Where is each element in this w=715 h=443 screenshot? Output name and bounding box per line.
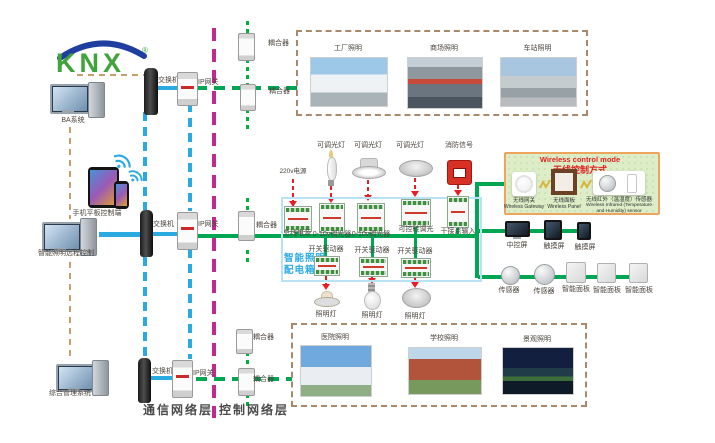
ethernet-line [155, 86, 179, 90]
coupler-line [246, 109, 249, 133]
module-label: 开关驱动器 [304, 246, 348, 254]
line-coupler [238, 33, 255, 61]
switch-actuator-module [401, 258, 431, 278]
smart-panel [597, 263, 616, 283]
comm-layer-label: 通信网络层 [143, 401, 213, 418]
panel-label: 智能面板 [561, 286, 591, 294]
load-label: 照明灯 [358, 312, 386, 320]
load-arrow [322, 284, 330, 290]
load-label: 照明灯 [401, 313, 429, 321]
ceiling-lamp [314, 291, 338, 306]
bulb-lamp [364, 283, 380, 309]
coupler-label: 耦合器 [256, 222, 280, 230]
sensor-dome [599, 175, 616, 192]
cabinet-title-line2: 配电箱 [284, 262, 316, 276]
ethernet-line [188, 103, 192, 211]
screen-label: 中控屏 [502, 242, 532, 250]
load-label: 消防信号 [442, 142, 476, 150]
coupler-line [246, 250, 249, 265]
dry-contact-module [447, 196, 469, 228]
module-label: 开关驱动器 [393, 248, 437, 256]
panel-label: 智能面板 [624, 287, 654, 295]
wireless-sensor-device [593, 171, 645, 195]
ethernet-line [143, 257, 147, 357]
touch-screen [577, 222, 591, 240]
ip-gateway [172, 360, 193, 398]
smart-panel [566, 262, 586, 283]
pc1-label: BA系统 [44, 117, 102, 125]
pc3-label: 综合管理系统 [38, 390, 102, 398]
load-label: 可调光灯 [394, 142, 426, 150]
ethernet-switch [140, 210, 153, 257]
switch-label: 交换机 [153, 221, 177, 229]
dimmer-module [357, 203, 385, 233]
wireless-sensor-label-en: Wireless Infrared (Temperature and Humid… [582, 203, 656, 215]
downlight-lamp [352, 158, 384, 178]
gateway-label: IP网关 [198, 221, 226, 229]
coupler-label: 耦合器 [253, 334, 277, 342]
screen-stand [513, 237, 521, 239]
line-coupler [236, 329, 253, 354]
pc-stand [62, 110, 74, 114]
module-label: 干接点输入 [432, 228, 484, 236]
bus-power-module [284, 206, 312, 232]
sensor-body [627, 174, 637, 193]
fire-alarm [447, 160, 472, 185]
load-label: 可调光灯 [352, 142, 384, 150]
knx-logo-text: KNX [56, 48, 125, 79]
presence-sensor [534, 264, 555, 285]
module-label: 开关驱动器 [350, 247, 394, 255]
school-photo [408, 347, 482, 395]
coupler-label: 耦合器 [253, 376, 277, 384]
candle-lamp [325, 150, 337, 186]
mall-photo [407, 57, 483, 109]
ethernet-line [152, 232, 179, 236]
landscape-photo [502, 347, 574, 395]
sensor-label: 传感器 [531, 288, 557, 296]
zone-label: 商场照明 [407, 45, 481, 53]
screen-label: 触摸屏 [541, 243, 567, 251]
coupler-line [246, 198, 249, 211]
pc2-label: 智能照明远程控制 [28, 250, 104, 258]
pc-link-line [99, 232, 143, 237]
factory-photo [310, 57, 388, 107]
coupler-label: 耦合器 [269, 88, 293, 96]
wireless-panel-device [551, 169, 577, 195]
zone-label: 车站照明 [500, 45, 575, 53]
line-coupler [240, 84, 256, 111]
zone-label: 学校照明 [408, 335, 480, 343]
wireless-signal-icon [580, 177, 592, 191]
ctrl-layer-label: 控制网络层 [219, 401, 289, 418]
ethernet-line [188, 249, 192, 359]
knx-logo: KNX ® [52, 34, 152, 82]
station-photo [500, 57, 577, 107]
registered-mark: ® [142, 46, 148, 55]
zone-label: 医院照明 [300, 334, 370, 342]
switch-actuator-module [359, 257, 388, 277]
wireless-gateway-device [512, 172, 536, 196]
ip-gateway [177, 212, 198, 250]
zone-label: 工厂照明 [310, 45, 386, 53]
ethernet-switch [138, 358, 151, 403]
presence-sensor [501, 266, 520, 285]
ip-gateway [177, 72, 198, 106]
ba-bus-line [69, 262, 71, 359]
knx-lighting-system-diagram: KNX ® BA系统 智能照明远程控制 综合管理系统 手机平板控制端 交换机 I… [0, 0, 715, 443]
coupler-label: 耦合器 [268, 40, 292, 48]
dish-lamp [402, 288, 431, 308]
ba-bus-line [69, 127, 71, 219]
ceiling-lamp [399, 160, 433, 177]
knx-screens-link [478, 229, 584, 233]
coupler-line [246, 352, 249, 369]
mobile-label: 手机平板控制端 [66, 210, 128, 218]
pc-tower [88, 82, 105, 118]
sensor-label: 传感器 [496, 287, 522, 295]
hospital-photo [300, 345, 372, 397]
central-control-screen [505, 221, 530, 237]
gateway-label: IP网关 [198, 79, 226, 87]
zone-label: 景观照明 [502, 336, 572, 344]
load-label: 可调光灯 [315, 142, 347, 150]
ethernet-line [143, 112, 147, 210]
power-label: 220v电源 [272, 168, 314, 175]
smart-panel [629, 263, 648, 283]
line-coupler [238, 211, 255, 241]
screen-label: 触摸屏 [574, 244, 596, 252]
thyristor-dimmer-module [401, 199, 431, 227]
touch-screen [544, 220, 562, 240]
dimmer-module [319, 203, 345, 233]
panel-label: 智能面板 [592, 287, 622, 295]
switch-actuator-module [314, 256, 340, 276]
ethernet-switch [144, 68, 158, 115]
ethernet-line [150, 376, 174, 380]
gateway-label: IP网关 [193, 370, 221, 378]
wireless-signal-icon [539, 177, 551, 191]
smartphone [114, 181, 129, 209]
load-label: 照明灯 [312, 311, 340, 319]
coupler-line [246, 59, 249, 84]
